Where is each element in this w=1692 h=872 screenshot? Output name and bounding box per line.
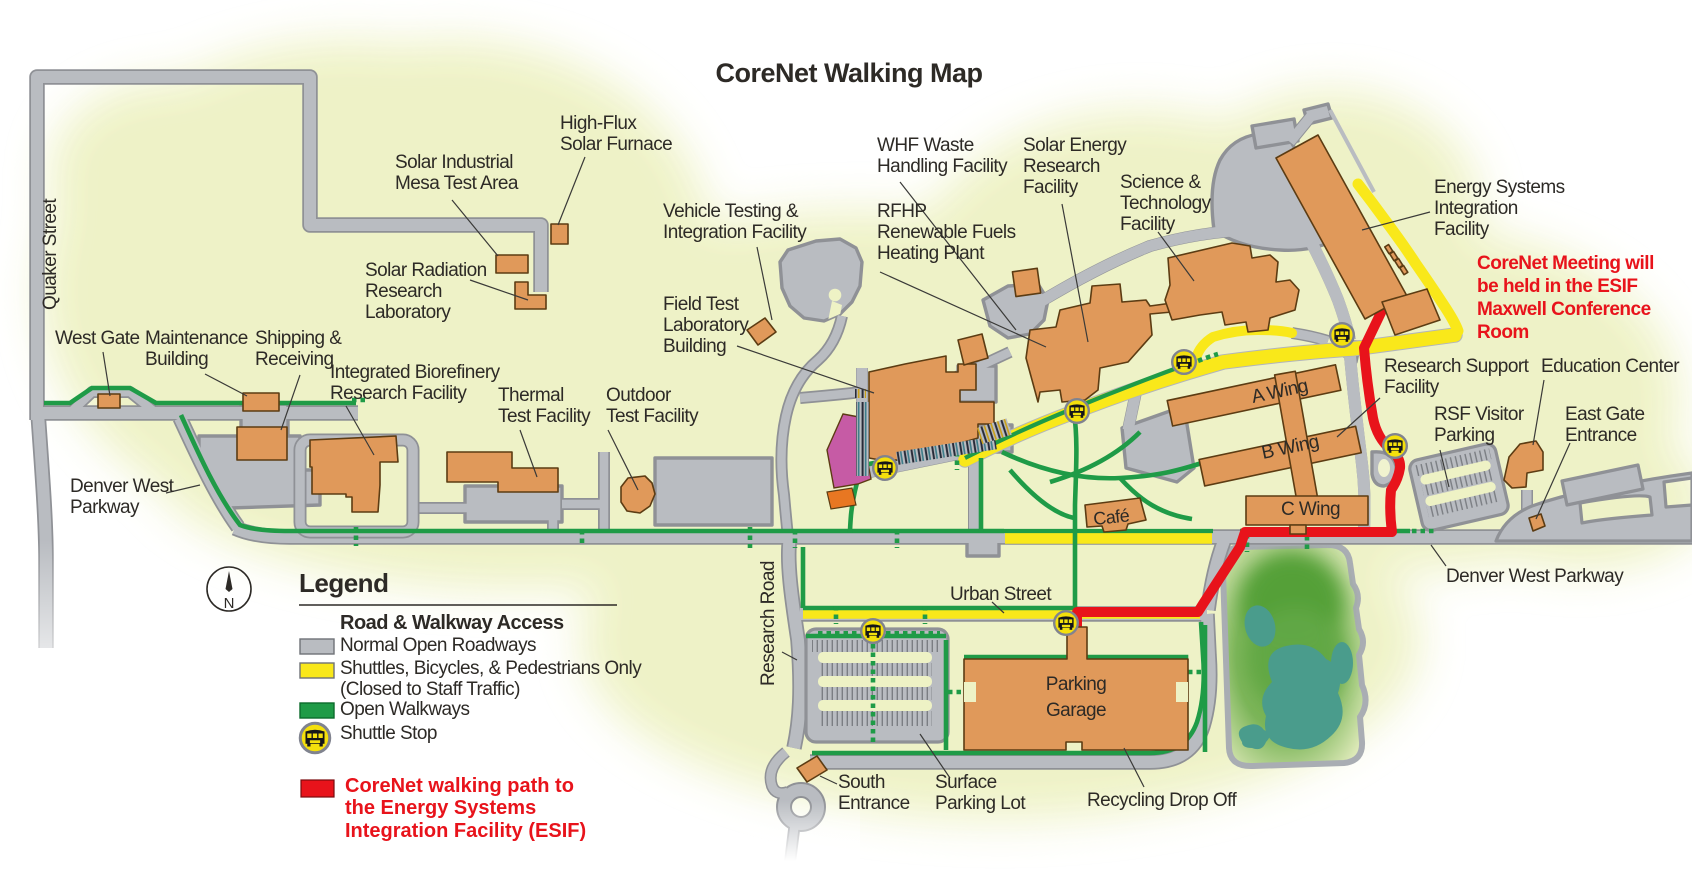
svg-text:Shipping &: Shipping & xyxy=(255,328,342,349)
svg-text:Road & Walkway Access: Road & Walkway Access xyxy=(340,612,564,634)
svg-text:Energy Systems: Energy Systems xyxy=(1434,177,1565,198)
svg-text:South: South xyxy=(838,772,885,793)
svg-text:Shuttle Stop: Shuttle Stop xyxy=(340,723,437,744)
svg-text:Entrance: Entrance xyxy=(838,793,910,814)
svg-text:Thermal: Thermal xyxy=(498,385,564,406)
svg-text:Research: Research xyxy=(365,281,442,302)
svg-text:Science &: Science & xyxy=(1120,172,1201,193)
svg-text:Handling Facility: Handling Facility xyxy=(877,156,1008,177)
svg-text:Solar Radiation: Solar Radiation xyxy=(365,260,487,281)
svg-text:Research Facility: Research Facility xyxy=(330,383,467,404)
svg-text:CoreNet Meeting will: CoreNet Meeting will xyxy=(1477,253,1654,274)
svg-text:East Gate: East Gate xyxy=(1565,404,1645,425)
svg-text:Recycling Drop Off: Recycling Drop Off xyxy=(1087,790,1237,811)
svg-text:Denver West: Denver West xyxy=(70,476,175,497)
svg-text:Parkway: Parkway xyxy=(70,497,140,518)
svg-text:Integration Facility: Integration Facility xyxy=(663,222,807,243)
svg-text:Legend: Legend xyxy=(299,568,388,598)
svg-text:Integrated Biorefinery: Integrated Biorefinery xyxy=(330,362,501,383)
svg-text:Vehicle Testing &: Vehicle Testing & xyxy=(663,201,799,222)
svg-text:CoreNet walking path to: CoreNet walking path to xyxy=(345,775,574,797)
svg-text:Open Walkways: Open Walkways xyxy=(340,699,469,720)
svg-text:Solar Energy: Solar Energy xyxy=(1023,135,1127,156)
svg-text:Facility: Facility xyxy=(1434,219,1490,240)
svg-text:Parking: Parking xyxy=(1434,425,1495,446)
svg-text:Building: Building xyxy=(145,349,208,370)
svg-text:Maintenance: Maintenance xyxy=(145,328,248,349)
svg-text:Café: Café xyxy=(1092,505,1130,529)
svg-text:Research: Research xyxy=(1023,156,1100,177)
svg-text:Research Road: Research Road xyxy=(758,561,779,686)
svg-text:Parking Lot: Parking Lot xyxy=(935,793,1026,814)
svg-text:Research Support: Research Support xyxy=(1384,356,1530,377)
svg-text:Integration Facility (ESIF): Integration Facility (ESIF) xyxy=(345,820,586,842)
svg-text:Heating Plant: Heating Plant xyxy=(877,243,985,264)
svg-text:Technology: Technology xyxy=(1120,193,1212,214)
svg-text:Entrance: Entrance xyxy=(1565,425,1637,446)
svg-text:Facility: Facility xyxy=(1384,377,1440,398)
svg-text:Facility: Facility xyxy=(1120,214,1176,235)
svg-text:Education Center: Education Center xyxy=(1541,356,1680,377)
svg-text:Urban Street: Urban Street xyxy=(950,584,1052,605)
svg-text:Room: Room xyxy=(1477,322,1529,343)
svg-text:Quaker Street: Quaker Street xyxy=(40,198,61,310)
svg-text:High-Flux: High-Flux xyxy=(560,113,637,134)
svg-text:Surface: Surface xyxy=(935,772,997,793)
svg-text:Parking: Parking xyxy=(1046,674,1107,695)
svg-text:Solar Industrial: Solar Industrial xyxy=(395,152,513,173)
svg-text:(Closed to Staff Traffic): (Closed to Staff Traffic) xyxy=(340,679,520,700)
svg-text:Renewable Fuels: Renewable Fuels xyxy=(877,222,1016,243)
svg-text:West Gate: West Gate xyxy=(55,328,139,349)
svg-text:WHF Waste: WHF Waste xyxy=(877,135,974,156)
svg-text:C Wing: C Wing xyxy=(1281,499,1340,520)
svg-text:Receiving: Receiving xyxy=(255,349,333,370)
svg-text:Laboratory: Laboratory xyxy=(365,302,451,323)
svg-text:Outdoor: Outdoor xyxy=(606,385,672,406)
svg-text:Garage: Garage xyxy=(1046,700,1106,721)
svg-text:Field Test: Field Test xyxy=(663,294,740,315)
svg-text:Solar Furnace: Solar Furnace xyxy=(560,134,672,155)
svg-text:RFHP: RFHP xyxy=(877,201,927,222)
svg-text:Maxwell Conference: Maxwell Conference xyxy=(1477,299,1651,320)
svg-text:RSF Visitor: RSF Visitor xyxy=(1434,404,1525,425)
svg-text:Test Facility: Test Facility xyxy=(498,406,591,427)
svg-text:Integration: Integration xyxy=(1434,198,1518,219)
svg-text:Mesa Test Area: Mesa Test Area xyxy=(395,173,519,194)
svg-text:Denver West Parkway: Denver West Parkway xyxy=(1446,566,1624,587)
svg-text:the Energy Systems: the Energy Systems xyxy=(345,797,536,819)
svg-text:Test Facility: Test Facility xyxy=(606,406,699,427)
svg-text:Shuttles, Bicycles, & Pedestri: Shuttles, Bicycles, & Pedestrians Only xyxy=(340,658,642,679)
svg-text:be held in the ESIF: be held in the ESIF xyxy=(1477,276,1637,297)
svg-text:Normal Open Roadways: Normal Open Roadways xyxy=(340,635,536,656)
svg-text:N: N xyxy=(224,595,235,612)
svg-text:Facility: Facility xyxy=(1023,177,1079,198)
svg-text:Laboratory: Laboratory xyxy=(663,315,749,336)
svg-text:CoreNet Walking Map: CoreNet Walking Map xyxy=(715,58,982,88)
svg-text:Building: Building xyxy=(663,336,726,357)
